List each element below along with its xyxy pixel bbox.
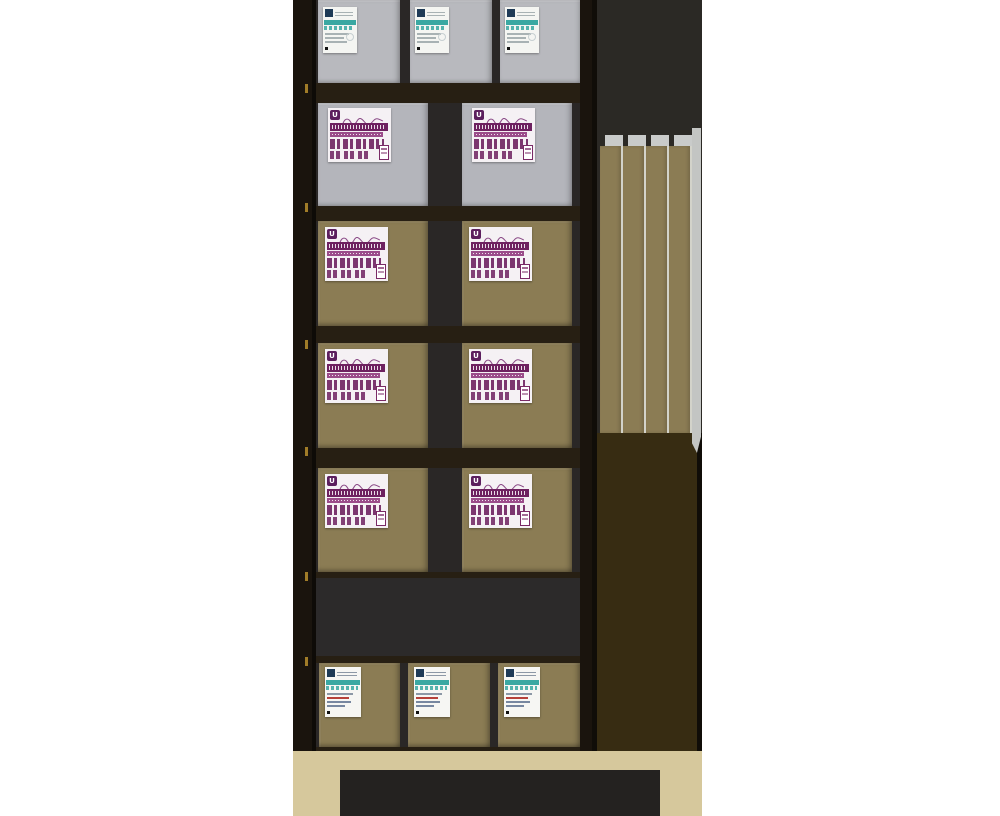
product-label-teal-red: [504, 667, 540, 717]
shelf-unit: U U U U U U U U: [293, 0, 592, 755]
product-label-purple: U: [469, 474, 532, 528]
badge-mark: [378, 389, 384, 391]
label-glyph-text: [471, 517, 513, 525]
product-label-teal: [323, 7, 357, 53]
brand-logo-letter: U: [332, 111, 338, 119]
purple-band-text: [329, 491, 383, 495]
label-glyph-text: [471, 505, 525, 515]
product-box: [319, 663, 400, 747]
label-corner-dot: [325, 47, 328, 50]
bay-lower-cavity: [592, 433, 702, 755]
product-label-purple: U: [325, 227, 388, 281]
product-box: [318, 0, 400, 83]
brand-logo-letter: U: [329, 352, 335, 360]
label-text-line: [417, 37, 436, 39]
product-label-purple: U: [328, 108, 391, 162]
brand-logo-u: U: [471, 351, 481, 361]
brand-logo-u: U: [327, 476, 337, 486]
purple-band-text: [329, 244, 383, 248]
badge-mark: [381, 152, 387, 154]
label-text-line: [325, 41, 347, 43]
magenta-band: [471, 498, 524, 503]
product-box: U: [462, 468, 572, 572]
label-text-line: [327, 701, 351, 703]
label-glyph-text: [327, 270, 369, 278]
label-red-text-line: [416, 697, 438, 699]
label-glyph-text: [474, 139, 528, 149]
vertical-panel: [646, 146, 667, 433]
label-glyph-text: [330, 139, 384, 149]
shelf-post-edge: [312, 0, 316, 755]
brand-logo-mark: [506, 669, 514, 677]
brand-logo-u: U: [330, 110, 340, 120]
product-box: U: [462, 221, 572, 326]
magenta-band-text: [329, 253, 378, 254]
purple-band: [471, 242, 529, 250]
purple-band: [327, 364, 385, 372]
magenta-band: [471, 373, 524, 378]
badge-mark: [378, 267, 384, 269]
teal-band: [416, 20, 448, 25]
label-glyph-text: [474, 151, 516, 159]
panel-stack: [600, 146, 692, 433]
shelf-right-post: [580, 0, 592, 755]
brand-logo-mark: [327, 669, 335, 677]
purple-band-text: [473, 491, 527, 495]
teal-band: [505, 680, 539, 685]
label-text-line: [416, 693, 442, 695]
brand-logo-u: U: [327, 351, 337, 361]
label-seal-circle: [528, 33, 536, 41]
magenta-band: [330, 132, 383, 137]
purple-band-text: [476, 125, 530, 129]
label-text-line: [416, 701, 440, 703]
label-red-text-line: [506, 697, 528, 699]
purple-band: [327, 242, 385, 250]
label-text-line: [506, 693, 532, 695]
badge-mark: [378, 514, 384, 516]
purple-band-text: [332, 125, 386, 129]
shelf-price-tag: [305, 572, 308, 581]
teal-text-row: [416, 26, 446, 30]
product-label-purple: U: [325, 474, 388, 528]
label-glyph-text: [471, 392, 513, 400]
bay-right-edge: [697, 433, 702, 755]
badge-mark: [378, 518, 384, 520]
teal-text-row: [506, 26, 536, 30]
label-corner-dot: [507, 47, 510, 50]
label-glyph-text: [327, 258, 381, 268]
product-box: U: [462, 343, 572, 448]
badge-mark: [381, 148, 387, 150]
brand-script-text: [339, 352, 382, 361]
shelf-price-tag: [305, 203, 308, 212]
empty-shelf-row: [316, 578, 582, 656]
label-text-line: [325, 37, 344, 39]
shelf-price-tag: [305, 84, 308, 93]
purple-band: [474, 123, 532, 131]
store-shelf-scene: U U U U U U U U: [0, 0, 1000, 816]
product-box: U: [318, 343, 428, 448]
label-header-text: [516, 670, 536, 676]
magenta-band: [327, 251, 380, 256]
brand-logo-mark: [325, 9, 333, 17]
label-glyph-text: [327, 517, 369, 525]
label-text-line: [507, 41, 529, 43]
brand-logo-letter: U: [476, 111, 482, 119]
badge-mark: [522, 518, 528, 520]
brand-logo-mark: [417, 9, 425, 17]
product-label-teal: [415, 7, 449, 53]
certification-badge: [520, 386, 530, 401]
purple-band-text: [473, 244, 527, 248]
brand-logo-letter: U: [473, 477, 479, 485]
brand-logo-mark: [416, 669, 424, 677]
magenta-band: [474, 132, 527, 137]
magenta-band-text: [329, 500, 378, 501]
vertical-panel: [623, 146, 644, 433]
product-box: [500, 0, 582, 83]
label-header-text: [335, 10, 353, 16]
brand-logo-u: U: [471, 476, 481, 486]
product-label-purple: U: [472, 108, 535, 162]
teal-text-row: [326, 686, 358, 690]
label-header-text: [517, 10, 535, 16]
product-label-purple: U: [325, 349, 388, 403]
brand-script-text: [339, 477, 382, 486]
magenta-band: [327, 498, 380, 503]
label-text-line: [416, 705, 434, 707]
badge-mark: [522, 271, 528, 273]
label-corner-dot: [417, 47, 420, 50]
teal-text-row: [505, 686, 537, 690]
purple-band: [471, 364, 529, 372]
brand-script-text: [483, 477, 526, 486]
brand-logo-letter: U: [329, 230, 335, 238]
brand-logo-letter: U: [329, 477, 335, 485]
product-box: [498, 663, 580, 747]
label-red-text-line: [327, 697, 349, 699]
label-text-line: [327, 693, 353, 695]
purple-band: [471, 489, 529, 497]
label-glyph-text: [327, 505, 381, 515]
teal-band: [326, 680, 360, 685]
purple-band-text: [329, 366, 383, 370]
product-label-purple: U: [469, 227, 532, 281]
magenta-band-text: [473, 375, 522, 376]
certification-badge: [376, 386, 386, 401]
product-label-teal-red: [414, 667, 450, 717]
vertical-panel-bay: [592, 0, 702, 755]
shelf-price-tag: [305, 340, 308, 349]
product-box: U: [462, 103, 572, 206]
label-text-line: [417, 41, 439, 43]
certification-badge: [520, 264, 530, 279]
product-box: U: [318, 221, 428, 326]
brand-script-text: [483, 352, 526, 361]
product-box: U: [318, 468, 428, 572]
product-box: [408, 663, 490, 747]
label-corner-dot: [327, 711, 330, 714]
product-label-teal-red: [325, 667, 361, 717]
badge-mark: [522, 393, 528, 395]
label-glyph-text: [471, 270, 513, 278]
certification-badge: [520, 511, 530, 526]
purple-band-text: [473, 366, 527, 370]
panel-top-cap: [651, 135, 669, 146]
label-seal-circle: [346, 33, 354, 41]
teal-text-row: [415, 686, 447, 690]
brand-logo-letter: U: [473, 352, 479, 360]
shelf-price-tag: [305, 447, 308, 456]
purple-band: [330, 123, 388, 131]
panel-top-cap: [674, 135, 692, 146]
brand-logo-letter: U: [473, 230, 479, 238]
badge-mark: [522, 514, 528, 516]
label-glyph-text: [330, 151, 372, 159]
certification-badge: [379, 145, 389, 160]
label-header-text: [337, 670, 357, 676]
brand-logo-u: U: [471, 229, 481, 239]
brand-script-text: [483, 230, 526, 239]
label-text-line: [507, 37, 526, 39]
product-label-teal: [505, 7, 539, 53]
product-box: [410, 0, 492, 83]
label-text-line: [327, 705, 345, 707]
certification-badge: [376, 511, 386, 526]
label-corner-dot: [506, 711, 509, 714]
product-label-purple: U: [469, 349, 532, 403]
label-seal-circle: [438, 33, 446, 41]
brand-logo-u: U: [327, 229, 337, 239]
certification-badge: [376, 264, 386, 279]
magenta-band-text: [332, 134, 381, 135]
certification-badge: [523, 145, 533, 160]
purple-band: [327, 489, 385, 497]
panel-top-cap: [628, 135, 646, 146]
badge-mark: [522, 267, 528, 269]
vertical-panel: [669, 146, 690, 433]
magenta-band-text: [476, 134, 525, 135]
teal-band: [324, 20, 356, 25]
panel-top-cap: [605, 135, 623, 146]
magenta-band: [327, 373, 380, 378]
teal-text-row: [324, 26, 354, 30]
label-header-text: [427, 10, 445, 16]
badge-mark: [378, 393, 384, 395]
badge-mark: [522, 389, 528, 391]
brand-logo-u: U: [474, 110, 484, 120]
label-text-line: [506, 705, 524, 707]
label-header-text: [426, 670, 446, 676]
bay-left-edge: [592, 0, 597, 755]
teal-band: [415, 680, 449, 685]
badge-mark: [378, 271, 384, 273]
badge-mark: [525, 148, 531, 150]
brand-script-text: [342, 111, 385, 120]
magenta-band: [471, 251, 524, 256]
label-text-line: [506, 701, 530, 703]
brand-script-text: [339, 230, 382, 239]
vertical-panel: [600, 146, 621, 433]
magenta-band-text: [329, 375, 378, 376]
label-glyph-text: [327, 380, 381, 390]
teal-band: [506, 20, 538, 25]
shelf-price-tag: [305, 657, 308, 666]
product-box: U: [318, 103, 428, 206]
brand-script-text: [486, 111, 529, 120]
label-glyph-text: [471, 258, 525, 268]
magenta-band-text: [473, 500, 522, 501]
bay-side-wall: [692, 128, 701, 453]
label-corner-dot: [416, 711, 419, 714]
magenta-band-text: [473, 253, 522, 254]
label-glyph-text: [327, 392, 369, 400]
label-glyph-text: [471, 380, 525, 390]
floor-mat: [340, 770, 660, 816]
brand-logo-mark: [507, 9, 515, 17]
badge-mark: [525, 152, 531, 154]
